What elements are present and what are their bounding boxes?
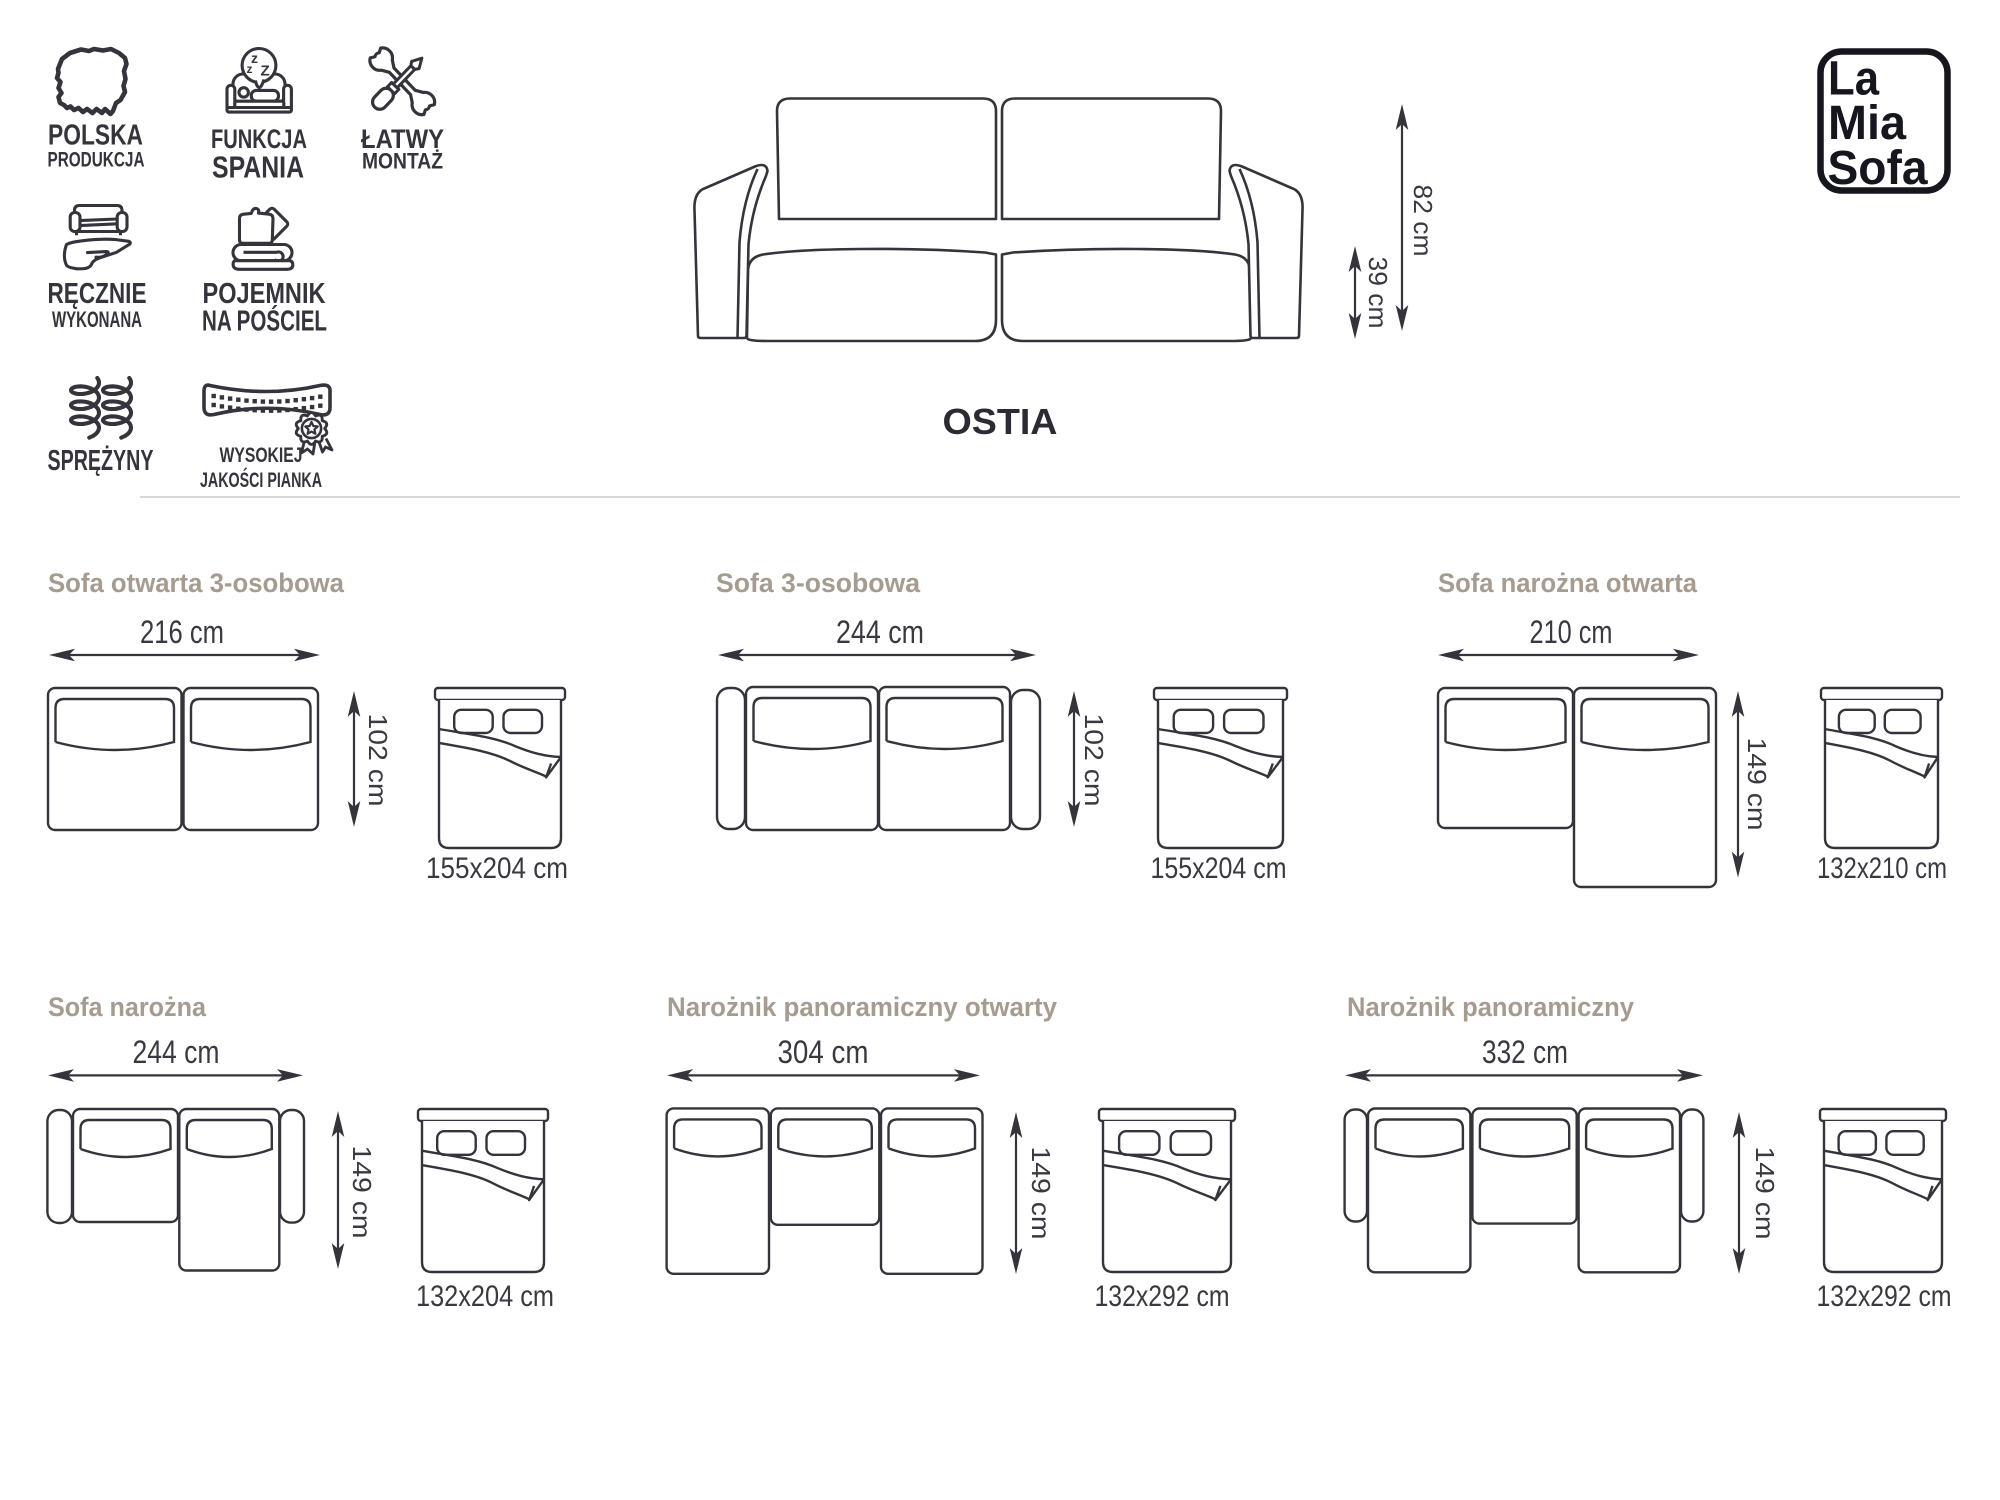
svg-text:149 cm: 149 cm	[1742, 738, 1772, 831]
svg-text:SPRĘŻYNY: SPRĘŻYNY	[48, 445, 154, 477]
svg-text:Narożnik panoramiczny: Narożnik panoramiczny	[1347, 992, 1634, 1022]
svg-text:132x292 cm: 132x292 cm	[1095, 1280, 1230, 1313]
svg-text:POLSKA: POLSKA	[48, 120, 143, 152]
svg-text:132x292 cm: 132x292 cm	[1817, 1280, 1952, 1313]
svg-text:Narożnik panoramiczny otwarty: Narożnik panoramiczny otwarty	[667, 992, 1057, 1022]
svg-text:155x204 cm: 155x204 cm	[426, 852, 568, 885]
svg-text:332 cm: 332 cm	[1482, 1034, 1568, 1070]
svg-text:Sofa narożna otwarta: Sofa narożna otwarta	[1438, 568, 1698, 598]
svg-text:Sofa: Sofa	[1828, 142, 1928, 195]
svg-text:OSTIA: OSTIA	[943, 401, 1058, 442]
svg-text:132x204 cm: 132x204 cm	[416, 1280, 554, 1313]
svg-text:WYKONANA: WYKONANA	[52, 307, 142, 332]
svg-text:216 cm: 216 cm	[140, 614, 224, 650]
svg-text:SPANIA: SPANIA	[212, 150, 304, 185]
svg-text:RĘCZNIE: RĘCZNIE	[48, 278, 147, 310]
svg-text:82 cm: 82 cm	[1408, 185, 1438, 257]
svg-text:244 cm: 244 cm	[133, 1034, 220, 1070]
svg-text:Sofa narożna: Sofa narożna	[48, 992, 207, 1022]
svg-text:210 cm: 210 cm	[1530, 614, 1613, 650]
svg-text:JAKOŚCI PIANKA: JAKOŚCI PIANKA	[200, 468, 322, 492]
svg-text:NA POŚCIEL: NA POŚCIEL	[202, 304, 327, 338]
svg-text:MONTAŻ: MONTAŻ	[362, 149, 443, 174]
svg-text:149 cm: 149 cm	[347, 1146, 377, 1239]
svg-text:132x210 cm: 132x210 cm	[1817, 852, 1947, 885]
svg-text:149 cm: 149 cm	[1750, 1147, 1780, 1240]
svg-text:Sofa otwarta 3-osobowa: Sofa otwarta 3-osobowa	[48, 568, 345, 598]
svg-text:Sofa 3-osobowa: Sofa 3-osobowa	[716, 568, 921, 598]
svg-text:PRODUKCJA: PRODUKCJA	[48, 149, 145, 172]
svg-text:Z: Z	[261, 63, 270, 80]
svg-text:304 cm: 304 cm	[778, 1034, 869, 1070]
svg-text:z: z	[247, 62, 253, 76]
svg-text:WYSOKIEJ: WYSOKIEJ	[220, 444, 303, 467]
svg-text:102 cm: 102 cm	[1079, 714, 1109, 807]
svg-text:244 cm: 244 cm	[836, 614, 924, 650]
svg-text:39 cm: 39 cm	[1363, 257, 1393, 329]
svg-text:155x204 cm: 155x204 cm	[1151, 852, 1287, 885]
svg-text:102 cm: 102 cm	[363, 714, 393, 807]
svg-text:149 cm: 149 cm	[1026, 1147, 1056, 1240]
